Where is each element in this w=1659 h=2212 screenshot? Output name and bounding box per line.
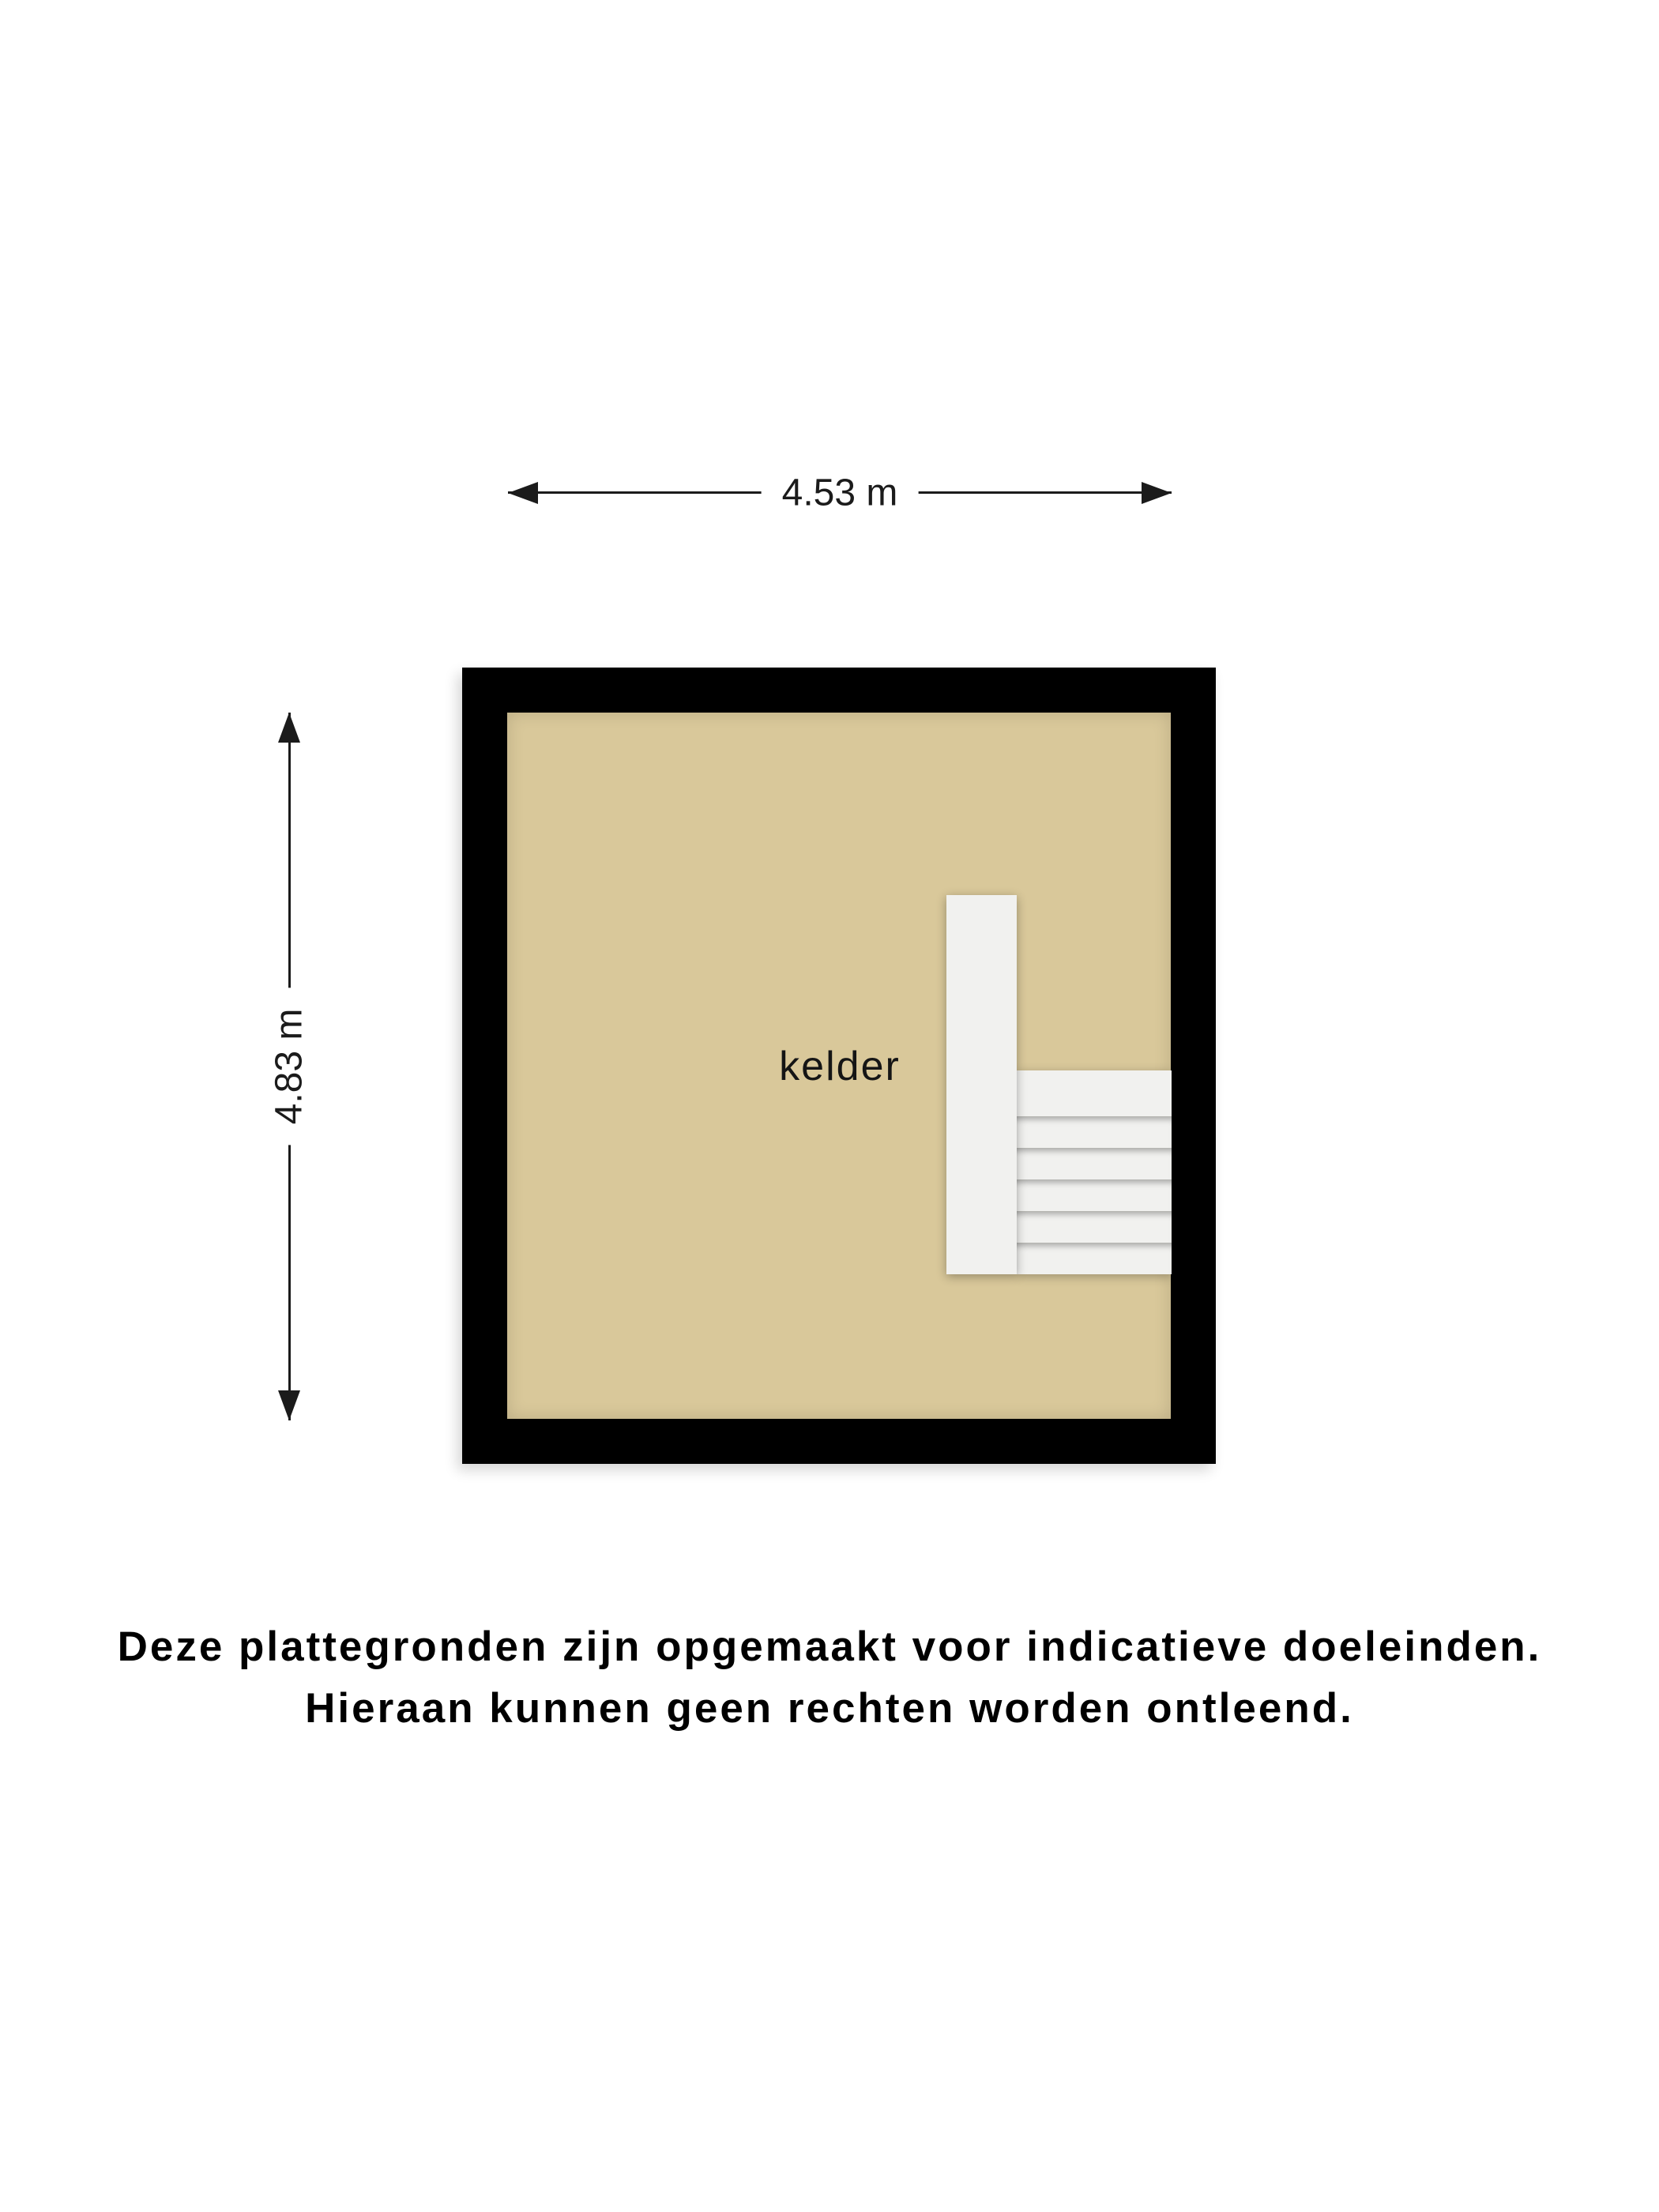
disclaimer-line-1: Deze plattegronden zijn opgemaakt voor i…	[0, 1616, 1659, 1678]
stair-tread	[1017, 1243, 1172, 1274]
room-label: kelder	[779, 1043, 901, 1090]
stair-tread	[1017, 1116, 1172, 1148]
stair-tread	[1017, 1148, 1172, 1179]
arrow-up-icon	[278, 713, 300, 743]
staircase	[1017, 1070, 1172, 1274]
stair-tread	[1017, 1070, 1172, 1116]
arrow-right-icon	[1142, 482, 1172, 504]
floorplan-canvas: 4.53 m 4.83 m kelder Deze plattegronden …	[0, 0, 1659, 2212]
arrow-left-icon	[508, 482, 538, 504]
dimension-width-label: 4.53 m	[762, 468, 919, 518]
room-floor-kelder: kelder	[507, 713, 1171, 1419]
stair-partition-wall	[946, 895, 1017, 1274]
floorplan-walls: kelder	[462, 668, 1216, 1464]
disclaimer-line-2: Hieraan kunnen geen rechten worden ontle…	[0, 1678, 1659, 1740]
dimension-height-label: 4.83 m	[265, 988, 314, 1145]
disclaimer: Deze plattegronden zijn opgemaakt voor i…	[0, 1616, 1659, 1740]
arrow-down-icon	[278, 1390, 300, 1420]
stair-tread	[1017, 1179, 1172, 1211]
stair-tread	[1017, 1211, 1172, 1243]
